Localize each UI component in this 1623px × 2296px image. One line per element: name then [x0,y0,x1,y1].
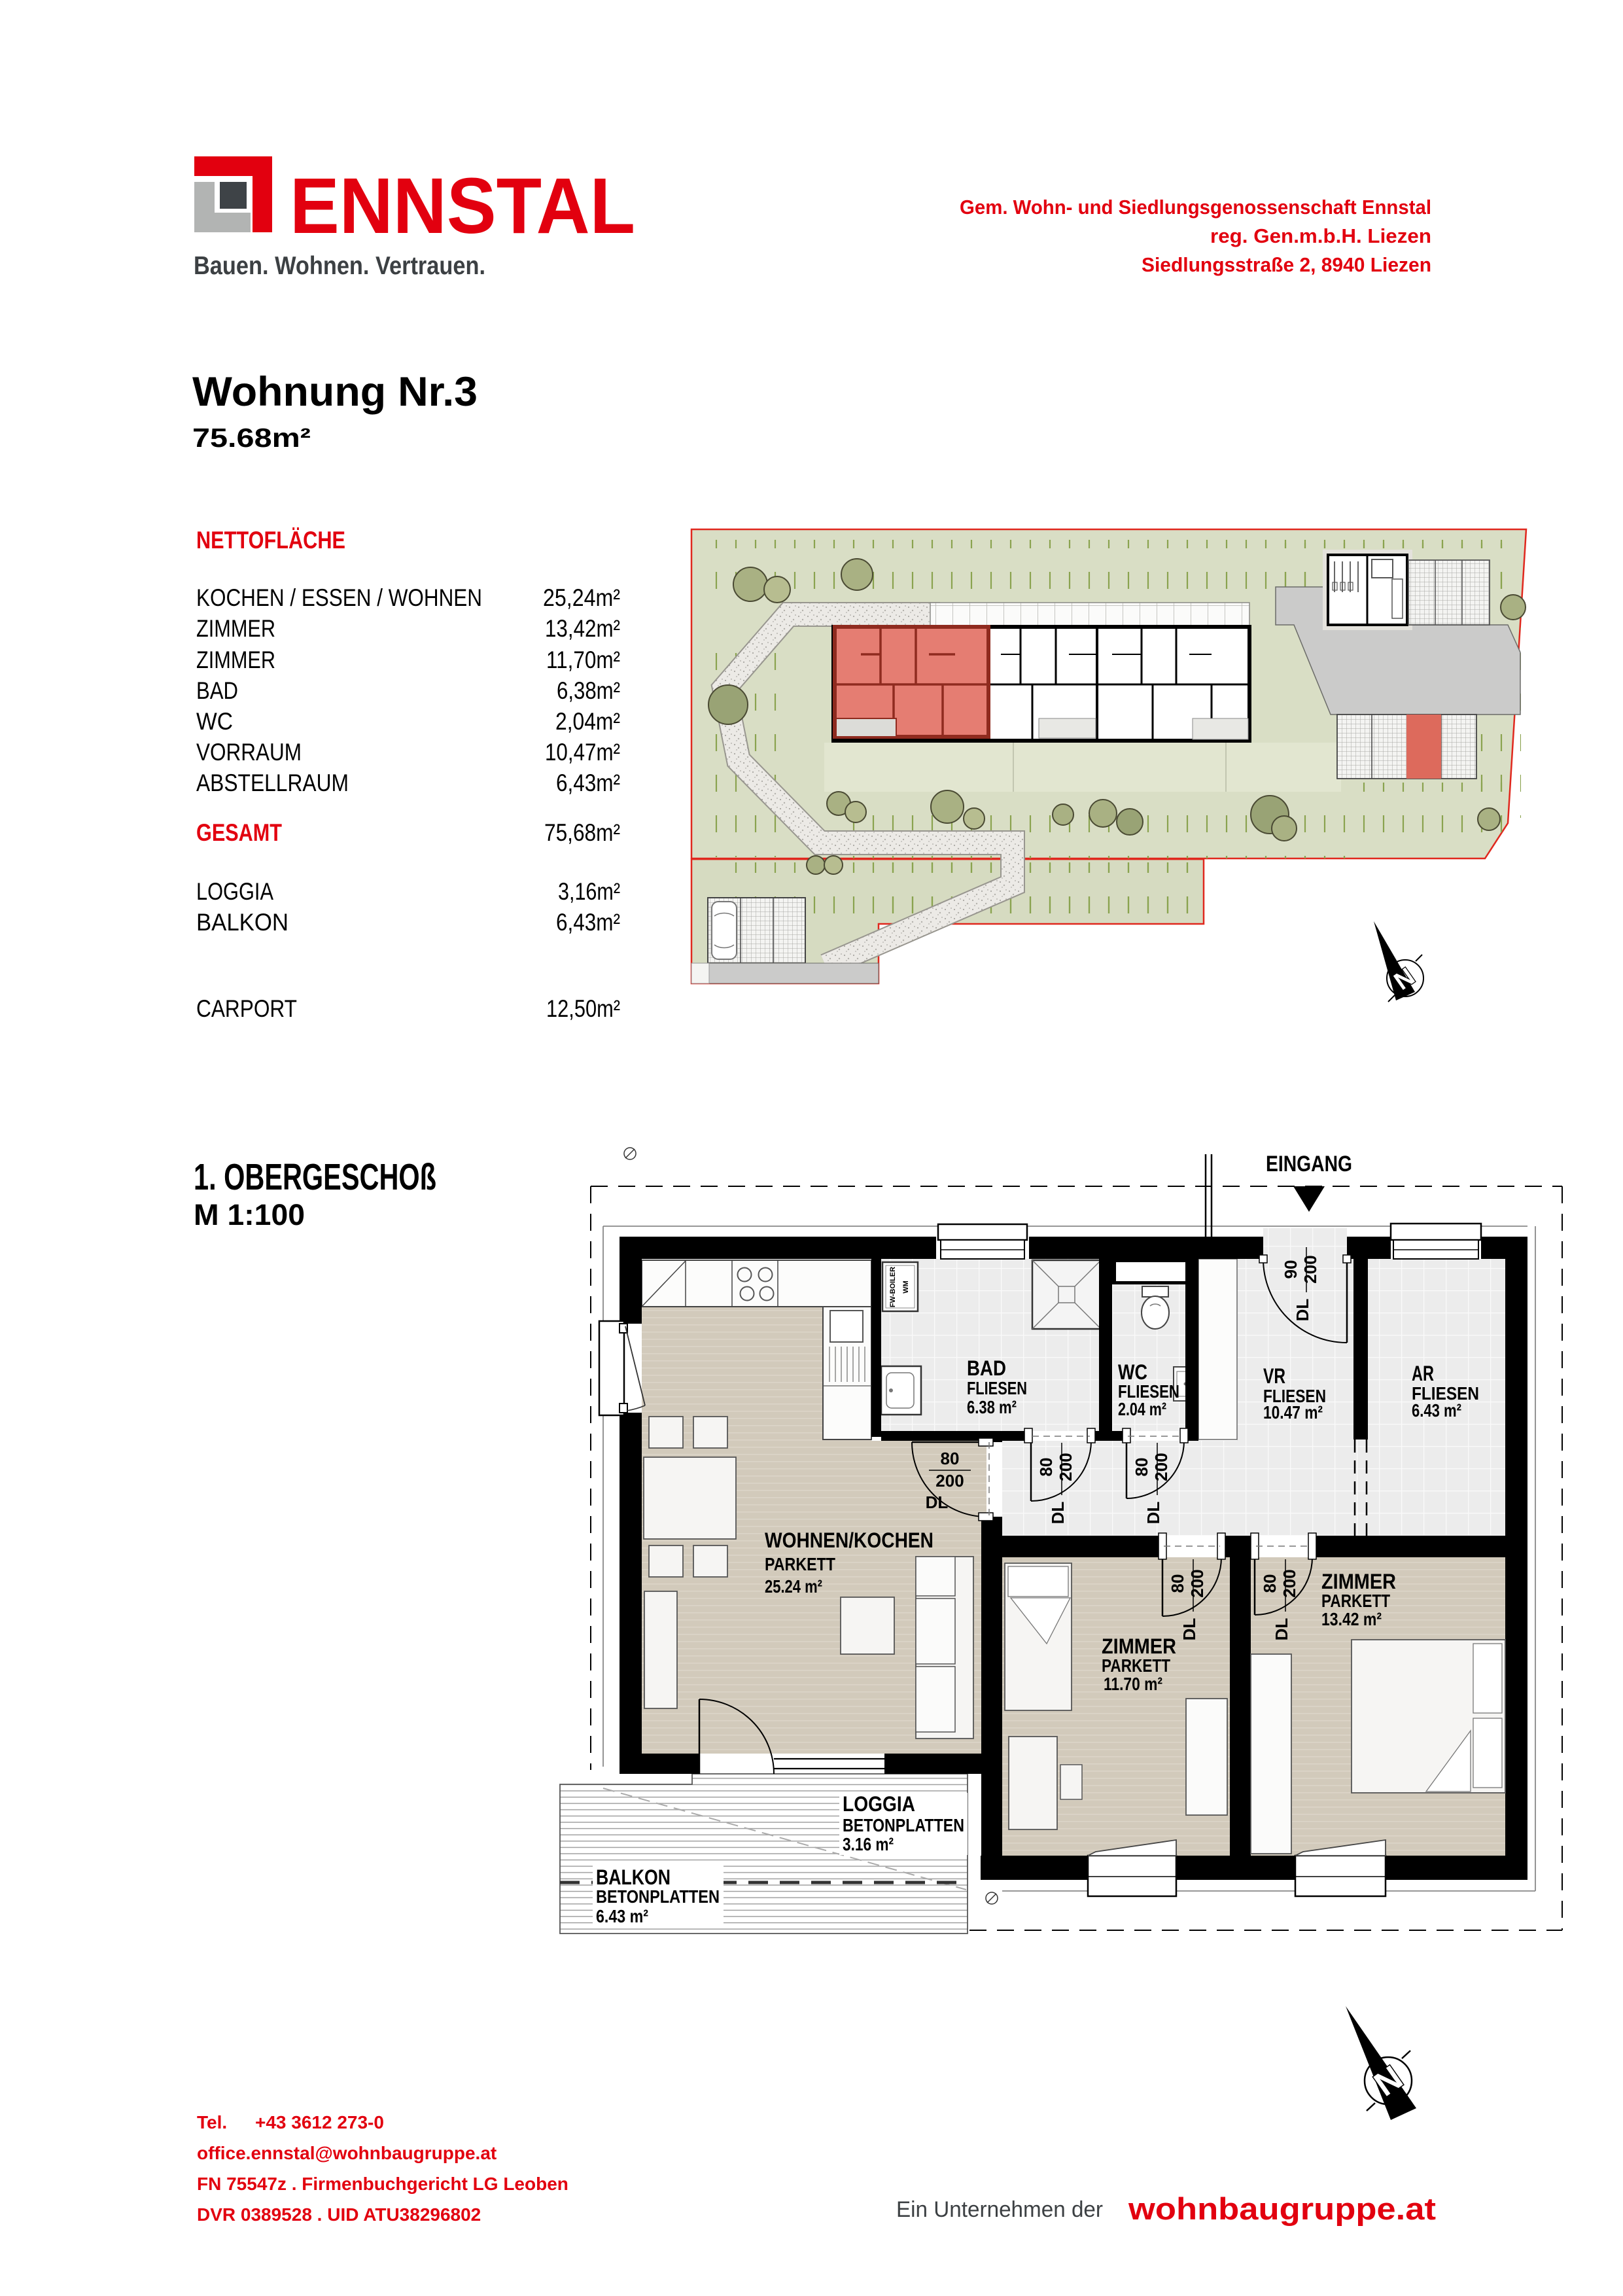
svg-text:ZIMMER: ZIMMER [196,615,275,642]
svg-text:Gem. Wohn- und Siedlungsgenoss: Gem. Wohn- und Siedlungsgenossenschaft E… [960,196,1431,219]
svg-text:6.43 m²: 6.43 m² [1412,1400,1461,1421]
svg-text:wohnbaugruppe.at: wohnbaugruppe.at [1128,2191,1436,2226]
svg-text:+43 3612 273-0: +43 3612 273-0 [255,2112,384,2132]
svg-text:3.16 m²: 3.16 m² [843,1834,894,1854]
svg-text:2.04 m²: 2.04 m² [1118,1399,1166,1419]
svg-text:25.24 m²: 25.24 m² [765,1576,822,1597]
svg-text:FN 75547z . Firmenbuchgericht: FN 75547z . Firmenbuchgericht LG Leoben [197,2174,568,2194]
svg-text:80: 80 [1260,1574,1280,1593]
svg-text:11,70m²: 11,70m² [546,646,620,673]
svg-text:DL: DL [1272,1618,1291,1641]
svg-text:DL: DL [926,1492,949,1512]
svg-text:ENNSTAL: ENNSTAL [290,161,635,250]
svg-text:80: 80 [1168,1574,1187,1593]
svg-text:200: 200 [1280,1569,1299,1597]
svg-text:11.70 m²: 11.70 m² [1104,1674,1162,1694]
svg-text:KOCHEN / ESSEN / WOHNEN: KOCHEN / ESSEN / WOHNEN [196,584,482,611]
svg-text:PARKETT: PARKETT [1102,1655,1170,1676]
svg-text:WC: WC [196,708,233,735]
svg-text:1. OBERGESCHOß: 1. OBERGESCHOß [194,1156,436,1198]
svg-text:LOGGIA: LOGGIA [196,878,273,905]
svg-text:VR: VR [1263,1364,1285,1388]
svg-text:office.ennstal@wohnbaugruppe.a: office.ennstal@wohnbaugruppe.at [197,2143,497,2163]
svg-text:WM: WM [902,1280,910,1294]
svg-text:WOHNEN/KOCHEN: WOHNEN/KOCHEN [765,1528,934,1552]
svg-text:6.43 m²: 6.43 m² [596,1906,648,1926]
svg-text:WC: WC [1118,1360,1147,1384]
svg-text:75,68m²: 75,68m² [544,819,620,846]
svg-text:10,47m²: 10,47m² [545,739,620,766]
svg-text:FLIESEN: FLIESEN [967,1378,1027,1398]
svg-text:10.47 m²: 10.47 m² [1263,1402,1323,1422]
svg-text:200: 200 [1056,1453,1075,1481]
svg-text:6.38 m²: 6.38 m² [967,1397,1017,1417]
svg-text:ZIMMER: ZIMMER [1102,1634,1176,1658]
svg-text:PARKETT: PARKETT [1321,1591,1390,1611]
svg-text:ABSTELLRAUM: ABSTELLRAUM [196,769,349,796]
svg-text:BETONPLATTEN: BETONPLATTEN [596,1886,720,1907]
svg-text:DL: DL [1179,1618,1199,1641]
svg-text:Bauen. Wohnen. Vertrauen.: Bauen. Wohnen. Vertrauen. [194,252,485,280]
svg-text:90: 90 [1281,1260,1300,1279]
svg-text:80: 80 [1132,1458,1151,1477]
svg-text:DVR 0389528 . UID ATU38296802: DVR 0389528 . UID ATU38296802 [197,2204,481,2225]
svg-text:VORRAUM: VORRAUM [196,739,302,766]
svg-text:6,43m²: 6,43m² [556,769,620,796]
svg-text:13.42 m²: 13.42 m² [1321,1609,1382,1629]
svg-text:DL: DL [1293,1299,1312,1322]
svg-text:BALKON: BALKON [596,1865,671,1889]
svg-text:DL: DL [1143,1502,1163,1525]
svg-text:2,04m²: 2,04m² [555,708,620,735]
svg-text:LOGGIA: LOGGIA [843,1792,915,1816]
svg-text:M 1:100: M 1:100 [194,1198,305,1231]
svg-text:BAD: BAD [967,1356,1006,1380]
svg-text:ZIMMER: ZIMMER [1321,1570,1396,1593]
svg-text:DL: DL [1048,1502,1068,1525]
svg-text:BAD: BAD [196,677,238,704]
svg-text:200: 200 [1187,1569,1207,1597]
svg-text:BETONPLATTEN: BETONPLATTEN [843,1815,964,1835]
svg-text:3,16m²: 3,16m² [558,878,620,905]
svg-text:25,24m²: 25,24m² [543,584,620,611]
svg-text:80: 80 [941,1449,960,1468]
svg-text:6,38m²: 6,38m² [557,677,620,704]
svg-text:Siedlungsstraße 2, 8940 Liezen: Siedlungsstraße 2, 8940 Liezen [1142,253,1431,276]
svg-text:200: 200 [1151,1453,1171,1481]
svg-text:6,43m²: 6,43m² [556,909,620,936]
svg-text:Ein Unternehmen der: Ein Unternehmen der [896,2197,1103,2222]
svg-text:80: 80 [1036,1458,1056,1477]
svg-text:ZIMMER: ZIMMER [196,646,275,673]
svg-text:Tel.: Tel. [197,2112,227,2132]
svg-text:200: 200 [1300,1255,1320,1283]
svg-text:75.68m²: 75.68m² [192,423,311,453]
svg-text:NETTOFLÄCHE: NETTOFLÄCHE [196,527,345,554]
svg-text:reg. Gen.m.b.H. Liezen: reg. Gen.m.b.H. Liezen [1210,224,1431,247]
svg-text:GESAMT: GESAMT [196,819,282,846]
svg-text:AR: AR [1412,1362,1434,1385]
svg-text:13,42m²: 13,42m² [545,615,620,642]
svg-text:200: 200 [935,1471,964,1491]
svg-text:BALKON: BALKON [196,909,288,936]
svg-text:PARKETT: PARKETT [765,1554,835,1574]
svg-text:Wohnung Nr.3: Wohnung Nr.3 [192,369,478,415]
svg-text:FW-BOILER: FW-BOILER [889,1267,897,1307]
svg-text:EINGANG: EINGANG [1266,1152,1352,1176]
svg-text:CARPORT: CARPORT [196,995,297,1022]
svg-text:12,50m²: 12,50m² [546,995,620,1022]
